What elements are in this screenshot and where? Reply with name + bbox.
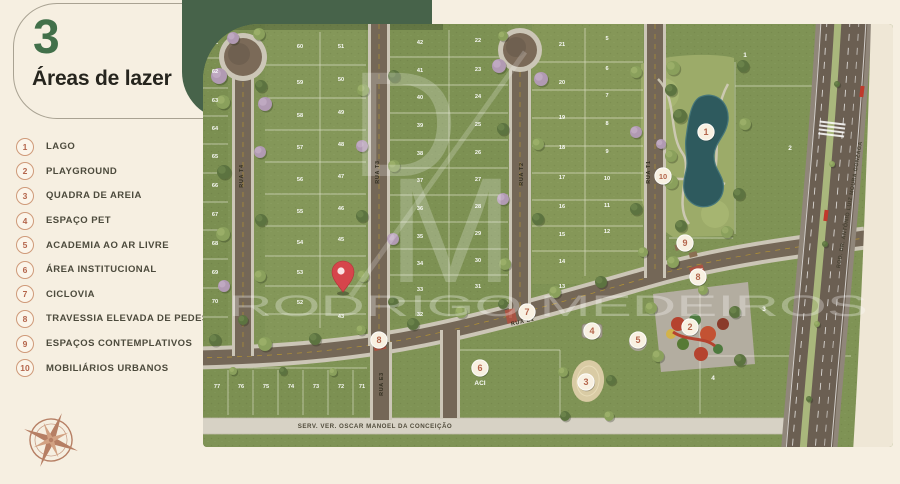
tree-highlight [666, 151, 673, 158]
lot-number: 48 [338, 142, 344, 148]
lot-number: 14 [559, 259, 566, 265]
lot-number: 64 [212, 126, 219, 132]
tree-highlight [676, 221, 683, 228]
legend-item-label: LAGO [46, 141, 75, 152]
tree-highlight [657, 140, 663, 146]
legend-item-institucional: 6ÁREA INSTITUCIONAL [16, 261, 229, 279]
svg-text:3: 3 [583, 377, 588, 387]
lot-number: 38 [417, 151, 423, 157]
svg-text:4: 4 [589, 326, 594, 336]
lot-number: 17 [559, 175, 565, 181]
tree-highlight [256, 215, 263, 222]
lot-number: 12 [604, 229, 610, 235]
legend-item-label: ESPAÇOS CONTEMPLATIVOS [46, 338, 192, 349]
tree-highlight [259, 338, 267, 346]
lot-number: 43 [338, 314, 344, 320]
tree-highlight [722, 227, 729, 234]
lot-number: 41 [417, 68, 423, 74]
lot-number: 21 [559, 42, 565, 48]
tree-highlight [631, 204, 638, 211]
lot-number: 7 [605, 93, 608, 99]
parcel-label: 1 [743, 52, 747, 59]
lot-number: 11 [604, 203, 610, 209]
lot-number: 23 [475, 67, 481, 73]
lot-number: 32 [417, 312, 423, 318]
page-title: Áreas de lazer [32, 67, 172, 91]
tree-highlight [533, 139, 540, 146]
lot-number: 20 [559, 80, 565, 86]
lot-number: 35 [417, 234, 423, 240]
lot-number: 15 [559, 232, 565, 238]
svg-text:6: 6 [477, 363, 482, 373]
svg-text:2: 2 [687, 322, 692, 332]
lot-number: 19 [559, 115, 565, 121]
lot-number: 69 [212, 270, 218, 276]
lot-number: 55 [297, 209, 303, 215]
tree-highlight [607, 376, 613, 382]
legend-item-academia: 5ACADEMIA AO AR LIVRE [16, 236, 229, 254]
lot-number: 31 [475, 284, 481, 290]
tree-highlight [254, 29, 261, 36]
legend-item-ciclovia: 7CICLOVIA [16, 286, 229, 304]
legend-number-badge: 8 [16, 310, 34, 328]
lot-number: 24 [475, 94, 482, 100]
lot-number: 46 [338, 206, 344, 212]
lot-number: 50 [338, 77, 344, 83]
lot-number: 5 [605, 36, 608, 42]
lot-number: 26 [475, 150, 481, 156]
tree-highlight [735, 355, 742, 362]
lot-number: 36 [417, 206, 423, 212]
legend-number-badge: 5 [16, 236, 34, 254]
street-name-label: RUA E3 [379, 372, 385, 396]
tree-highlight [738, 61, 745, 68]
lot-number: 58 [297, 113, 303, 119]
legend-item-travessia: 8TRAVESSIA ELEVADA DE PEDESTRE [16, 310, 229, 328]
legend-item-label: ESPAÇO PET [46, 215, 111, 226]
tree-highlight [217, 228, 225, 236]
legend-item-playground: 2PLAYGROUND [16, 163, 229, 181]
lot-number: 52 [297, 300, 303, 306]
tree-highlight [734, 189, 741, 196]
tree-highlight [668, 257, 675, 264]
legend-number-badge: 7 [16, 285, 34, 303]
tree-highlight [533, 214, 540, 221]
lot-number: 59 [297, 80, 303, 86]
legend-number-badge: 9 [16, 335, 34, 353]
lot-number: 57 [297, 145, 303, 151]
legend-item-label: QUADRA DE AREIA [46, 190, 142, 201]
lot-number: 66 [212, 183, 218, 189]
lot-number: 68 [212, 241, 218, 247]
legend-item-label: PLAYGROUND [46, 166, 117, 177]
lot-number: 70 [212, 299, 218, 305]
tree-highlight [653, 351, 660, 358]
tree-highlight [740, 119, 747, 126]
lot-number: 73 [313, 384, 319, 390]
lot-number: 16 [559, 204, 565, 210]
svg-text:8: 8 [695, 272, 700, 282]
tree-highlight [357, 326, 363, 332]
street-name-label: RUA T3 [375, 160, 381, 183]
lot-number: 10 [604, 176, 610, 182]
tree-highlight [667, 62, 675, 70]
lot-number: 49 [338, 110, 344, 116]
tree-highlight [561, 412, 567, 418]
lot-number: 71 [359, 384, 365, 390]
lot-number: 67 [212, 212, 218, 218]
siteplan-map: D M RODRIGO MEDEIROS 6162636465666768697… [203, 24, 893, 447]
tree-highlight [217, 96, 225, 104]
lot-number: 30 [475, 258, 481, 264]
lot-number: 37 [417, 178, 423, 184]
street-name-label: RUA T2 [519, 162, 525, 185]
tree-highlight [834, 81, 837, 84]
lot-number: 53 [297, 270, 303, 276]
tree-highlight [639, 248, 645, 254]
tree-highlight [806, 396, 809, 399]
tree-highlight [493, 60, 501, 68]
lot-number: 56 [297, 177, 303, 183]
tree-highlight [674, 110, 682, 118]
svg-text:9: 9 [682, 238, 687, 248]
lot-number: 39 [417, 123, 423, 129]
tree-highlight [280, 368, 284, 372]
tree-highlight [218, 166, 226, 174]
lot-number: 65 [212, 154, 218, 160]
tree-highlight [357, 211, 364, 218]
siteplan-svg: D M RODRIGO MEDEIROS 6162636465666768697… [203, 24, 893, 447]
svg-text:7: 7 [524, 307, 529, 317]
legend-item-quadra: 3QUADRA DE AREIA [16, 187, 229, 205]
svg-text:1: 1 [703, 127, 708, 137]
tree-highlight [631, 127, 638, 134]
lot-number: 42 [417, 40, 423, 46]
street-name-label: SERV. VER. OSCAR MANOEL DA CONCEIÇÃO [298, 423, 453, 430]
legend-item-pet: 4ESPAÇO PET [16, 212, 229, 230]
legend-item-label: TRAVESSIA ELEVADA DE PEDESTRE [46, 313, 229, 324]
legend-item-label: ACADEMIA AO AR LIVRE [46, 240, 169, 251]
legend-number-badge: 10 [16, 359, 34, 377]
lot-number: 74 [288, 384, 295, 390]
lot-number: 47 [338, 174, 344, 180]
tree-highlight [219, 281, 226, 288]
parcel-label: 4 [711, 375, 715, 382]
legend-item-contemplativos: 9ESPAÇOS CONTEMPLATIVOS [16, 335, 229, 353]
masterplan-page: 3 Áreas de lazer 1LAGO 2PLAYGROUND 3QUAD… [0, 0, 900, 484]
svg-text:8: 8 [376, 335, 381, 345]
parcel-label: ACI [474, 380, 485, 387]
watermark-name: RODRIGO MEDEIROS [228, 290, 868, 323]
legend-item-mobiliarios: 10MOBILIÁRIOS URBANOS [16, 359, 229, 377]
tree-highlight [256, 81, 263, 88]
svg-text:10: 10 [659, 172, 667, 181]
tree-highlight [330, 369, 334, 373]
lot-number: 60 [297, 44, 303, 50]
lot-number: 8 [605, 121, 608, 127]
street-name-label: RUA T4 [239, 164, 245, 187]
tree-highlight [822, 241, 825, 244]
svg-text:5: 5 [635, 335, 640, 345]
lot-number: 18 [559, 145, 565, 151]
tree-highlight [498, 124, 505, 131]
lot-number: 9 [605, 149, 608, 155]
lot-number: 27 [475, 177, 481, 183]
lot-number: 45 [338, 237, 344, 243]
lot-number: 13 [559, 284, 565, 290]
lot-number: 76 [238, 384, 244, 390]
lot-number: 75 [263, 384, 269, 390]
lot-number: 6 [605, 66, 608, 72]
tree-highlight [535, 73, 543, 81]
parcel-label: 3 [762, 306, 766, 313]
tree-highlight [666, 85, 673, 92]
legend-number-badge: 4 [16, 212, 34, 230]
compass-rose-icon [18, 406, 84, 474]
tree-highlight [829, 161, 832, 164]
lot-number: 25 [475, 122, 481, 128]
legend: 1LAGO 2PLAYGROUND 3QUADRA DE AREIA 4ESPA… [16, 138, 229, 384]
tree-highlight [605, 412, 611, 418]
street-name-label: RUA T1 [646, 160, 652, 183]
legend-item-lago: 1LAGO [16, 138, 229, 156]
lot-number: 29 [475, 231, 481, 237]
tree-highlight [499, 32, 505, 38]
lot-number: 28 [475, 204, 481, 210]
lot-number: 77 [214, 384, 220, 390]
tree-highlight [255, 147, 262, 154]
lot-number: 33 [417, 287, 423, 293]
tree-highlight [259, 98, 267, 106]
parcel-label: 2 [788, 145, 792, 152]
legend-item-label: CICLOVIA [46, 289, 95, 300]
section-number: 3 [33, 14, 60, 62]
legend-number-badge: 2 [16, 162, 34, 180]
tree-highlight [631, 67, 638, 74]
tree-highlight [310, 334, 317, 341]
lot-number: 63 [212, 98, 218, 104]
lot-number: 51 [338, 44, 344, 50]
tree-highlight [559, 368, 565, 374]
tree-highlight [230, 368, 234, 372]
legend-item-label: MOBILIÁRIOS URBANOS [46, 363, 169, 374]
lot-number: 54 [297, 240, 304, 246]
tree-highlight [596, 277, 603, 284]
legend-number-badge: 1 [16, 138, 34, 156]
lot-number: 34 [417, 261, 424, 267]
legend-number-badge: 6 [16, 261, 34, 279]
legend-item-label: ÁREA INSTITUCIONAL [46, 264, 157, 275]
watermark-monogram-m: M [388, 146, 513, 314]
lot-number: 22 [475, 38, 481, 44]
tree-highlight [210, 335, 217, 342]
tree-highlight [255, 271, 262, 278]
tree-highlight [228, 33, 235, 40]
lot-number: 40 [417, 95, 423, 101]
lot-number: 62 [212, 69, 218, 75]
legend-number-badge: 3 [16, 187, 34, 205]
lot-number: 72 [338, 384, 344, 390]
